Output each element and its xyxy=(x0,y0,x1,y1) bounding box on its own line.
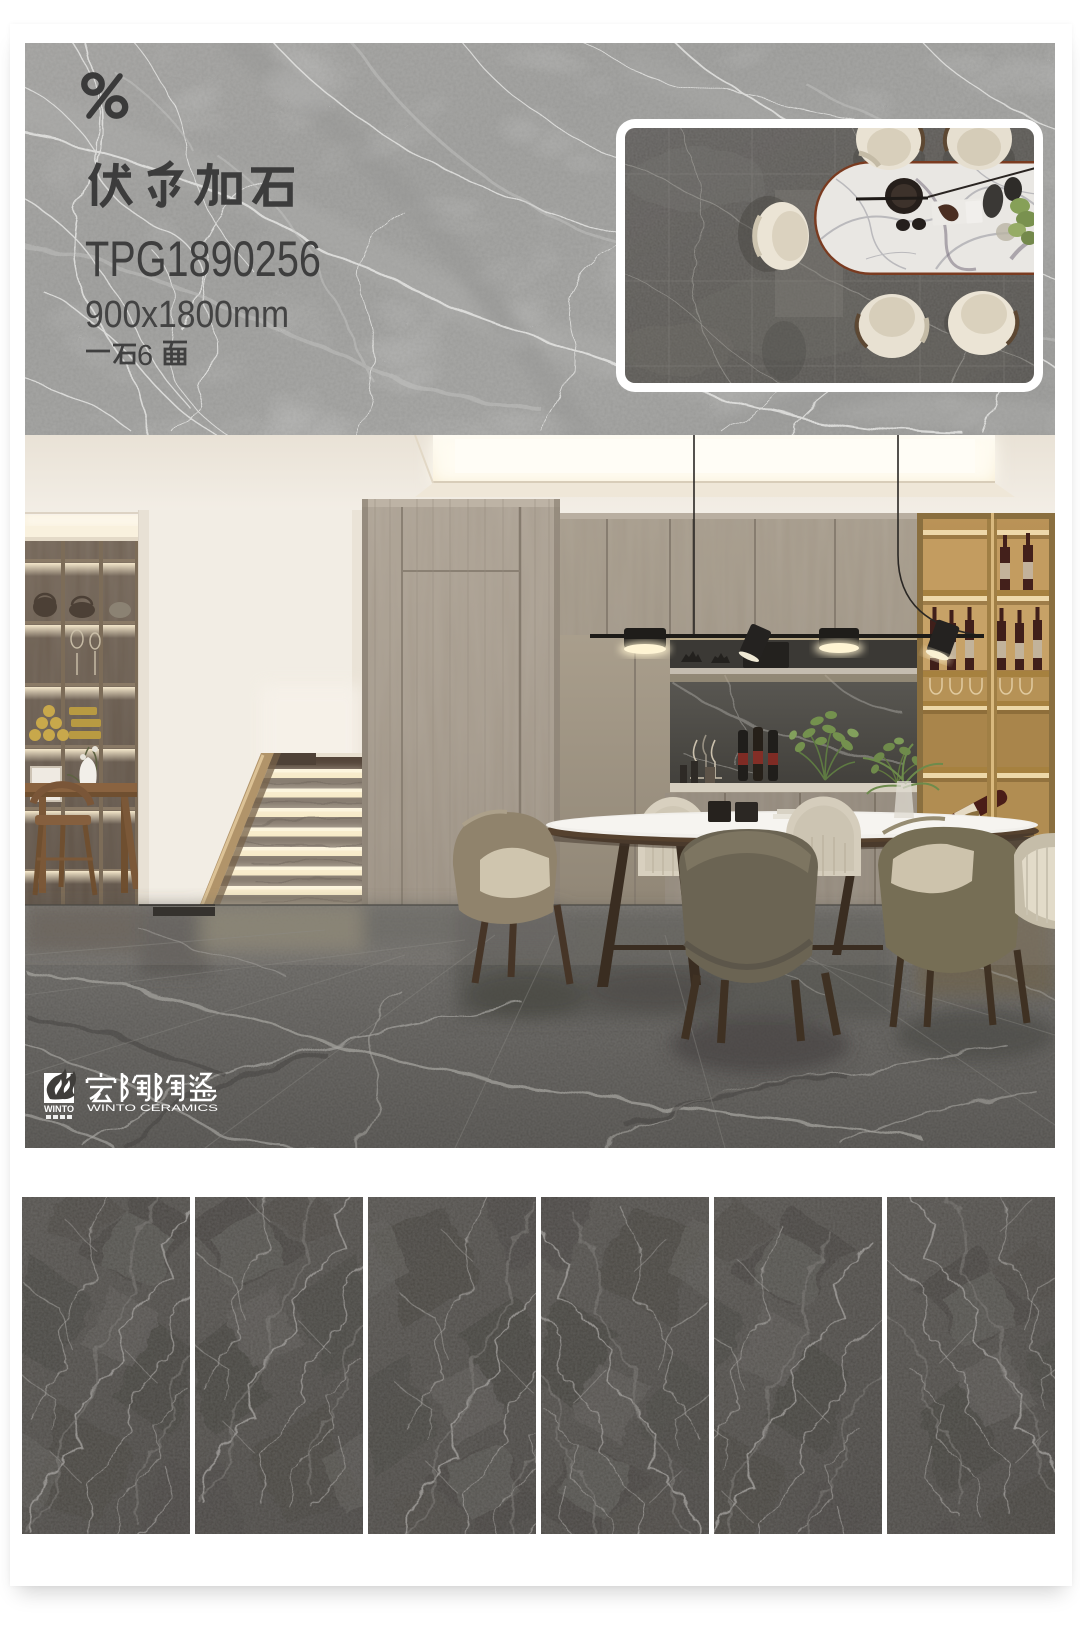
svg-text:WINTO CERAMICS: WINTO CERAMICS xyxy=(87,1103,218,1114)
svg-text:6: 6 xyxy=(137,340,153,372)
svg-text:900x1800mm: 900x1800mm xyxy=(85,294,289,336)
svg-text:WINTO: WINTO xyxy=(44,1104,74,1114)
svg-text:TPG1890256: TPG1890256 xyxy=(85,231,321,287)
